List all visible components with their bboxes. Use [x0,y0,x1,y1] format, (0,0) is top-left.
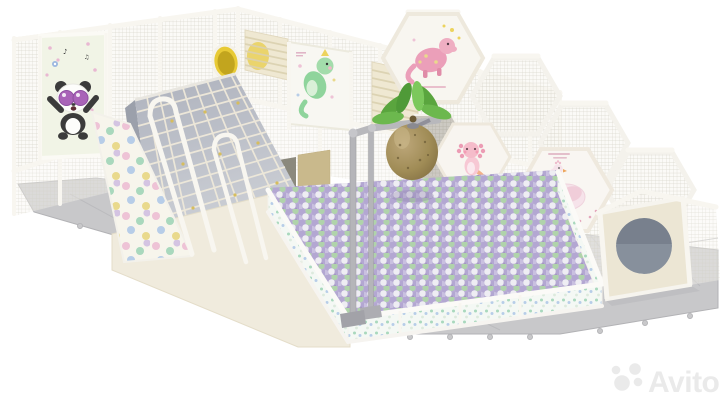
left-tower: ♪ ♫ [40,33,106,160]
coconut-bag [386,124,438,180]
green-dragon-panel [289,42,351,136]
playground-render: ♪ ♫ [0,0,720,404]
support-pole [350,132,356,320]
panda-panel: ♪ ♫ [40,33,106,160]
music-note-icon: ♪ [63,48,67,56]
avito-watermark: Avito [612,363,720,399]
avito-logo-icon [612,363,643,391]
support-pole [369,126,374,314]
music-note-icon: ♫ [84,54,89,61]
playground-product-photo: ♪ ♫ [0,0,720,404]
watermark-label: Avito [648,366,720,399]
